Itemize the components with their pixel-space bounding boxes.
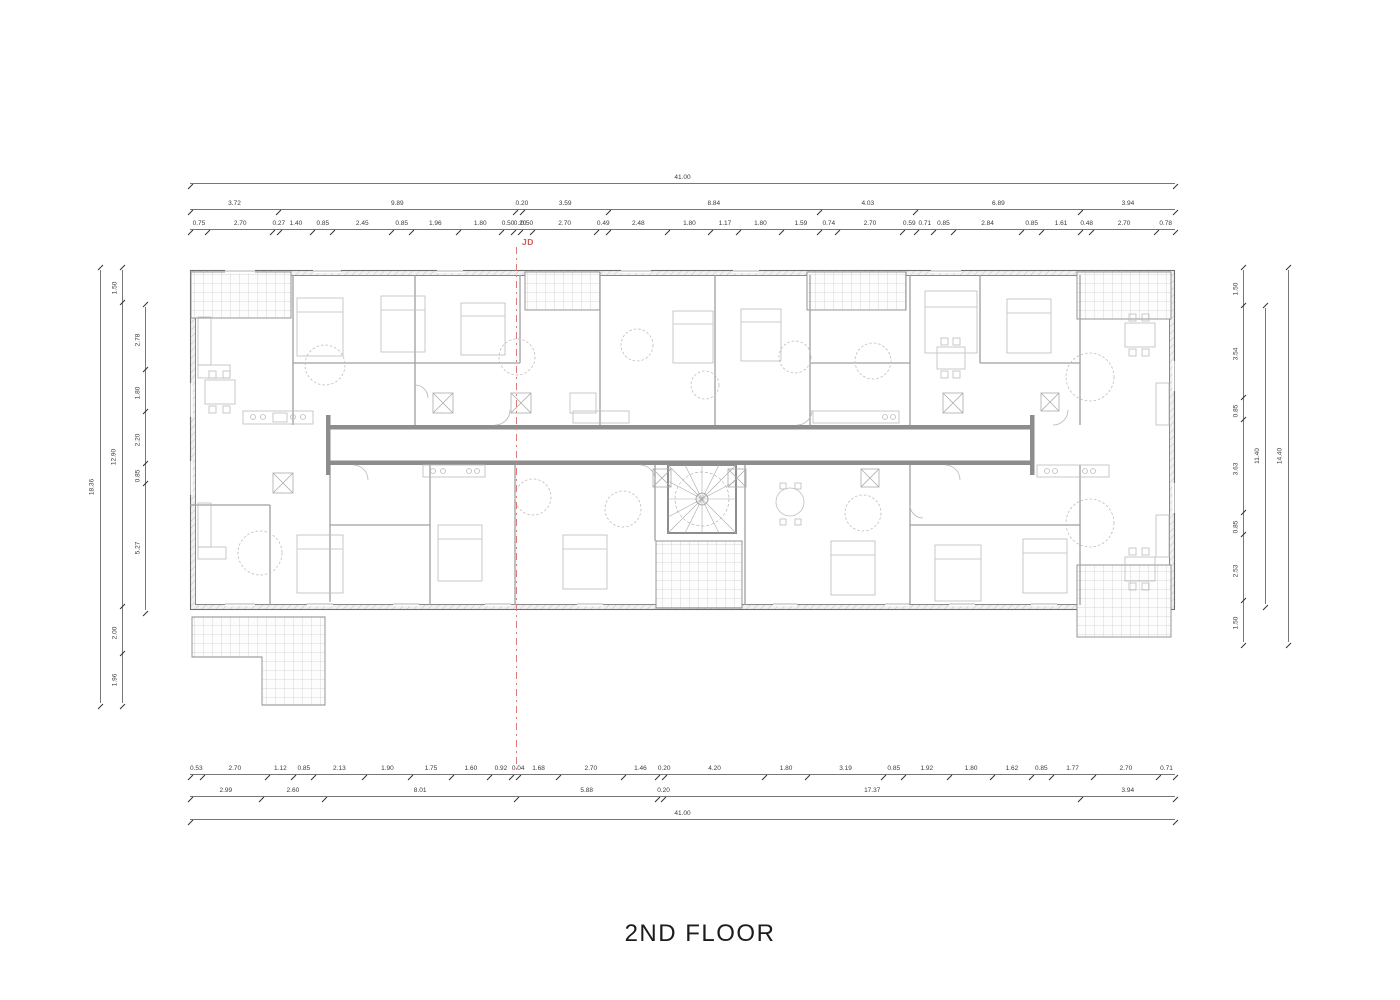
dim-segment: 1.60 (452, 763, 490, 779)
drawing-sheet: 41.00 3.729.890.203.598.844.036.893.94 0… (0, 0, 1400, 1000)
dim-segment: 11.40 (1254, 308, 1270, 604)
dim-segment: 2.99 (190, 785, 262, 801)
dim-segment: 0.85 (294, 763, 314, 779)
dim-value: 14.40 (1278, 448, 1285, 464)
dim-value: 8.84 (608, 201, 819, 208)
dim-value: 1.50 (1234, 283, 1241, 296)
dim-segment: 17.37 (664, 785, 1081, 801)
dim-value: 0.85 (884, 766, 904, 773)
dim-value: 0.85 (1234, 521, 1241, 534)
dim-value: 0.71 (916, 221, 933, 228)
dim-value: 1.92 (904, 766, 950, 773)
dim-segment: 0.85 (1232, 400, 1248, 422)
dim-value: 0.85 (313, 221, 333, 228)
dim-segment: 1.80 (765, 763, 808, 779)
dim-value: 0.75 (190, 221, 208, 228)
dim-value: 3.94 (1081, 788, 1176, 795)
section-marker-label: JD (522, 237, 534, 247)
dim-value: 41.00 (190, 175, 1175, 182)
dim-right-overall: 14.40 (1277, 270, 1293, 642)
dim-segment: 0.59 (902, 218, 916, 234)
dim-segment: 2.78 (134, 307, 150, 372)
dim-segment: 1.75 (410, 763, 452, 779)
dim-segment: 6.89 (916, 198, 1081, 214)
dim-value: 0.59 (902, 221, 916, 228)
dim-value: 8.01 (324, 788, 516, 795)
dim-value: 2.70 (838, 221, 903, 228)
dim-segment: 41.00 (190, 172, 1175, 188)
dim-value: 2.78 (136, 333, 143, 346)
dim-value: 1.75 (410, 766, 452, 773)
dim-segment: 8.01 (324, 785, 516, 801)
dim-right-mid: 11.40 (1254, 308, 1270, 604)
dim-segment: 2.70 (838, 218, 903, 234)
dim-segment: 0.85 (1022, 218, 1042, 234)
dim-value: 17.37 (664, 788, 1081, 795)
dim-value: 2.60 (262, 788, 324, 795)
dim-segment: 3.19 (808, 763, 884, 779)
dim-segment: 0.85 (392, 218, 412, 234)
dim-value: 0.78 (1156, 221, 1175, 228)
dim-value: 3.94 (1081, 201, 1175, 208)
dim-segment: 2.60 (262, 785, 324, 801)
dim-value: 1.50 (113, 281, 120, 294)
dim-value: 1.17 (711, 221, 739, 228)
dim-segment: 1.80 (950, 763, 993, 779)
dim-value: 0.20 (516, 201, 523, 208)
dim-segment: 0.75 (190, 218, 208, 234)
dim-value: 0.20 (658, 766, 665, 773)
dim-segment: 5.88 (516, 785, 657, 801)
dim-segment: 1.77 (1051, 763, 1093, 779)
dim-segment: 3.54 (1232, 309, 1248, 400)
dim-segment: 5.27 (134, 486, 150, 610)
dim-value: 1.90 (365, 766, 410, 773)
dim-value: 2.13 (314, 766, 365, 773)
dim-value: 2.84 (954, 221, 1022, 228)
dim-segment: 0.85 (313, 218, 333, 234)
dim-segment: 1.61 (1042, 218, 1080, 234)
dim-segment: 1.92 (904, 763, 950, 779)
dim-segment: 14.40 (1277, 270, 1293, 642)
dim-value: 1.80 (765, 766, 808, 773)
dim-segment: 0.71 (1158, 763, 1175, 779)
dim-segment: 2.20 (134, 415, 150, 467)
dim-left-overall: 18.36 (89, 270, 105, 703)
dim-value: 1.62 (993, 766, 1032, 773)
dim-value: 0.20 (657, 788, 664, 795)
dim-value: 3.54 (1234, 348, 1241, 361)
dim-value: 1.80 (739, 221, 782, 228)
dim-value: 1.61 (1042, 221, 1080, 228)
dim-value: 1.12 (267, 766, 294, 773)
dim-value: 1.40 (279, 221, 312, 228)
dim-bottom-segments: 2.992.608.015.880.2017.373.94 (190, 785, 1175, 801)
dim-value: 0.85 (136, 470, 143, 483)
dim-segment: 2.70 (559, 763, 623, 779)
dim-value: 1.96 (113, 674, 120, 687)
dim-value: 4.20 (664, 766, 764, 773)
dim-segment: 4.20 (664, 763, 764, 779)
floor-plan (185, 265, 1180, 710)
dim-segment: 2.53 (1232, 538, 1248, 603)
dim-segment: 2.48 (609, 218, 668, 234)
dim-top-overall: 41.00 (190, 172, 1175, 188)
dim-value: 2.00 (113, 627, 120, 640)
dim-segment: 0.71 (916, 218, 933, 234)
dim-segment: 0.74 (820, 218, 838, 234)
dim-value: 9.89 (279, 201, 516, 208)
dim-segment: 2.70 (203, 763, 267, 779)
dim-value: 2.70 (532, 221, 597, 228)
dim-value: 1.50 (1234, 616, 1241, 629)
dim-value: 1.80 (136, 387, 143, 400)
dim-value: 1.77 (1051, 766, 1093, 773)
dim-segment: 2.84 (954, 218, 1022, 234)
dim-value: 2.45 (333, 221, 392, 228)
dim-segment: 2.70 (1092, 218, 1157, 234)
dim-right-detail: 1.503.540.853.630.852.531.50 (1232, 270, 1248, 642)
dim-segment: 1.40 (279, 218, 312, 234)
dim-value: 0.50 (502, 221, 514, 228)
spiral-stair (668, 465, 736, 533)
dim-segment: 41.00 (190, 808, 1175, 824)
dim-value: 5.27 (136, 542, 143, 555)
dim-segment: 1.50 (1232, 603, 1248, 642)
dim-segment: 2.70 (1094, 763, 1158, 779)
dim-segment: 1.68 (519, 763, 559, 779)
dim-value: 0.85 (1022, 221, 1042, 228)
dim-value: 1.59 (782, 221, 820, 228)
dim-segment: 1.59 (782, 218, 820, 234)
dim-value: 0.49 (597, 221, 609, 228)
dim-segment: 1.96 (412, 218, 459, 234)
dim-segment: 0.50 (520, 218, 532, 234)
dim-value: 6.89 (916, 201, 1081, 208)
dim-segment: 2.70 (208, 218, 273, 234)
dim-segment: 3.59 (522, 198, 608, 214)
dim-segment: 1.90 (365, 763, 410, 779)
dim-segment: 12.90 (111, 305, 127, 609)
dim-value: 0.85 (392, 221, 412, 228)
dim-segment: 3.72 (190, 198, 279, 214)
dim-value: 0.71 (1158, 766, 1175, 773)
dim-segment: 9.89 (279, 198, 516, 214)
dim-value: 0.48 (1080, 221, 1091, 228)
drawing-title: 2ND FLOOR (0, 920, 1400, 948)
dim-bottom-overall: 41.00 (190, 808, 1175, 824)
dim-segment: 1.62 (993, 763, 1032, 779)
dim-left-outer: 1.5012.902.001.96 (111, 270, 127, 703)
dim-top-segments: 3.729.890.203.598.844.036.893.94 (190, 198, 1175, 214)
dim-segment: 2.45 (333, 218, 392, 234)
dim-bottom-detail: 0.532.701.120.852.131.901.751.600.920.04… (190, 763, 1175, 779)
dim-value: 41.00 (190, 811, 1175, 818)
dim-value: 2.70 (1094, 766, 1158, 773)
dim-segment: 3.63 (1232, 422, 1248, 516)
dim-value: 0.85 (294, 766, 314, 773)
dim-value: 1.68 (519, 766, 559, 773)
dim-value: 11.40 (1255, 448, 1262, 464)
dim-value: 1.96 (412, 221, 459, 228)
dim-value: 2.70 (208, 221, 273, 228)
dim-segment: 1.80 (739, 218, 782, 234)
dim-segment: 0.85 (884, 763, 904, 779)
dim-value: 0.27 (272, 221, 279, 228)
dim-value: 3.59 (522, 201, 608, 208)
dim-value: 1.46 (623, 766, 658, 773)
dim-segment: 0.85 (134, 466, 150, 486)
dim-value: 2.20 (136, 434, 143, 447)
dim-segment: 1.17 (711, 218, 739, 234)
dim-segment: 18.36 (89, 270, 105, 703)
dim-value: 2.70 (559, 766, 623, 773)
dim-value: 3.19 (808, 766, 884, 773)
dim-segment: 0.85 (933, 218, 953, 234)
dim-segment: 3.94 (1081, 198, 1175, 214)
dim-value: 1.80 (459, 221, 502, 228)
dim-segment: 0.85 (1031, 763, 1051, 779)
dim-segment: 0.92 (490, 763, 512, 779)
dim-value: 2.48 (609, 221, 668, 228)
dim-segment: 2.13 (314, 763, 365, 779)
dim-segment: 0.78 (1156, 218, 1175, 234)
dim-segment: 1.96 (111, 657, 127, 703)
dim-value: 3.63 (1234, 463, 1241, 476)
dim-value: 2.70 (1092, 221, 1157, 228)
dim-value: 18.36 (90, 478, 97, 494)
dim-top-detail: 0.752.700.271.400.852.450.851.961.800.50… (190, 218, 1175, 234)
dim-value: 2.99 (190, 788, 262, 795)
dim-value: 2.70 (203, 766, 267, 773)
dim-value: 1.80 (668, 221, 711, 228)
dim-segment: 4.03 (820, 198, 916, 214)
dim-segment: 2.70 (532, 218, 597, 234)
dim-value: 1.80 (950, 766, 993, 773)
dim-value: 3.72 (190, 201, 279, 208)
dim-value: 1.60 (452, 766, 490, 773)
dim-segment: 1.80 (668, 218, 711, 234)
section-line (516, 247, 517, 770)
dim-value: 5.88 (516, 788, 657, 795)
dim-value: 0.53 (190, 766, 203, 773)
dim-value: 0.20 (514, 221, 521, 228)
dim-value: 2.53 (1234, 564, 1241, 577)
dim-value: 4.03 (820, 201, 916, 208)
dim-value: 0.92 (490, 766, 512, 773)
dim-segment: 1.12 (267, 763, 294, 779)
dim-left-inner: 2.781.802.200.855.27 (134, 307, 150, 610)
dim-segment: 8.84 (608, 198, 819, 214)
dim-segment: 1.80 (459, 218, 502, 234)
dim-value: 12.90 (112, 449, 119, 465)
dim-value: 0.50 (520, 221, 532, 228)
dim-value: 0.74 (820, 221, 838, 228)
dim-segment: 3.94 (1081, 785, 1176, 801)
dim-segment: 1.46 (623, 763, 658, 779)
dim-segment: 0.85 (1232, 516, 1248, 538)
dim-value: 0.85 (1234, 405, 1241, 418)
dim-value: 0.85 (933, 221, 953, 228)
dim-value: 0.85 (1031, 766, 1051, 773)
